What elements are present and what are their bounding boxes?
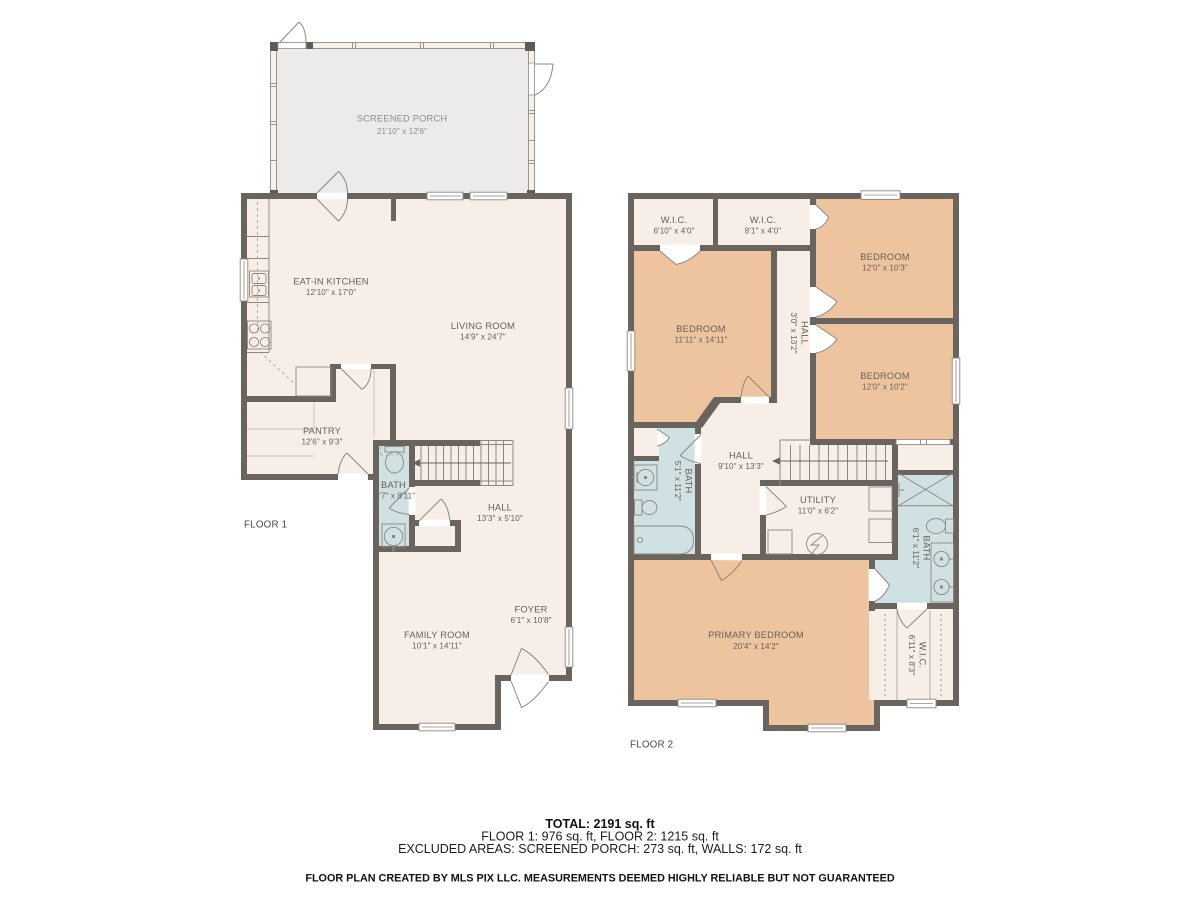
svg-text:10'1" x 14'11": 10'1" x 14'11" [412, 642, 462, 651]
svg-text:BEDROOM: BEDROOM [860, 371, 909, 381]
svg-text:BATH: BATH [922, 536, 932, 561]
svg-text:LIVING ROOM: LIVING ROOM [451, 321, 515, 331]
svg-text:4'7" x 8'11": 4'7" x 8'11" [375, 492, 416, 501]
svg-text:FAMILY ROOM: FAMILY ROOM [404, 630, 470, 640]
svg-text:BATH: BATH [381, 480, 406, 490]
svg-text:20'4" x 14'2": 20'4" x 14'2" [733, 642, 779, 651]
svg-text:FLOOR PLAN CREATED BY MLS PIX: FLOOR PLAN CREATED BY MLS PIX LLC. MEASU… [305, 873, 894, 885]
svg-text:EXCLUDED AREAS: SCREENED PORCH: EXCLUDED AREAS: SCREENED PORCH: 273 sq. … [398, 842, 802, 856]
svg-text:12'6" x 9'3": 12'6" x 9'3" [301, 438, 342, 447]
svg-text:6'1" x 11'2": 6'1" x 11'2" [911, 528, 920, 569]
svg-text:21'10" x 12'6": 21'10" x 12'6" [377, 127, 427, 136]
svg-text:HALL: HALL [800, 321, 810, 345]
svg-text:SCREENED PORCH: SCREENED PORCH [357, 114, 448, 124]
svg-text:EAT-IN KITCHEN: EAT-IN KITCHEN [293, 277, 368, 287]
svg-text:6'1" x 10'8": 6'1" x 10'8" [510, 616, 551, 625]
svg-text:PRIMARY BEDROOM: PRIMARY BEDROOM [708, 630, 804, 640]
svg-text:UTILITY: UTILITY [800, 495, 836, 505]
svg-text:HALL: HALL [729, 451, 753, 461]
svg-text:11'0" x 6'2": 11'0" x 6'2" [798, 507, 839, 516]
svg-text:HALL: HALL [488, 503, 512, 513]
svg-text:3'0" x 13'2": 3'0" x 13'2" [789, 312, 798, 353]
svg-text:6'11" x 8'3": 6'11" x 8'3" [907, 635, 916, 676]
svg-text:12'0" x 10'3": 12'0" x 10'3" [862, 264, 908, 273]
svg-text:6'10" x 4'0": 6'10" x 4'0" [653, 227, 694, 236]
svg-text:BATH: BATH [684, 469, 694, 494]
svg-text:FOYER: FOYER [514, 605, 547, 615]
svg-text:9'10" x 13'3": 9'10" x 13'3" [718, 462, 764, 471]
svg-text:W.I.C.: W.I.C. [750, 215, 777, 225]
svg-text:FLOOR 1: FLOOR 1 [244, 520, 287, 531]
svg-text:13'3" x 5'10": 13'3" x 5'10" [477, 514, 523, 523]
svg-text:14'9" x 24'7": 14'9" x 24'7" [460, 333, 506, 342]
svg-text:12'10" x 17'0": 12'10" x 17'0" [306, 288, 356, 297]
svg-text:PANTRY: PANTRY [303, 426, 341, 436]
svg-text:8'1" x 4'0": 8'1" x 4'0" [745, 227, 782, 236]
svg-text:5'1" x 11'2": 5'1" x 11'2" [673, 461, 682, 502]
svg-text:W.I.C.: W.I.C. [918, 642, 928, 669]
svg-text:BEDROOM: BEDROOM [676, 324, 725, 334]
svg-text:11'11" x 14'11": 11'11" x 14'11" [674, 336, 727, 345]
svg-text:FLOOR 2: FLOOR 2 [630, 740, 673, 751]
svg-text:W.I.C.: W.I.C. [661, 215, 688, 225]
svg-text:BEDROOM: BEDROOM [860, 252, 909, 262]
svg-text:12'0" x 10'2": 12'0" x 10'2" [862, 383, 908, 392]
